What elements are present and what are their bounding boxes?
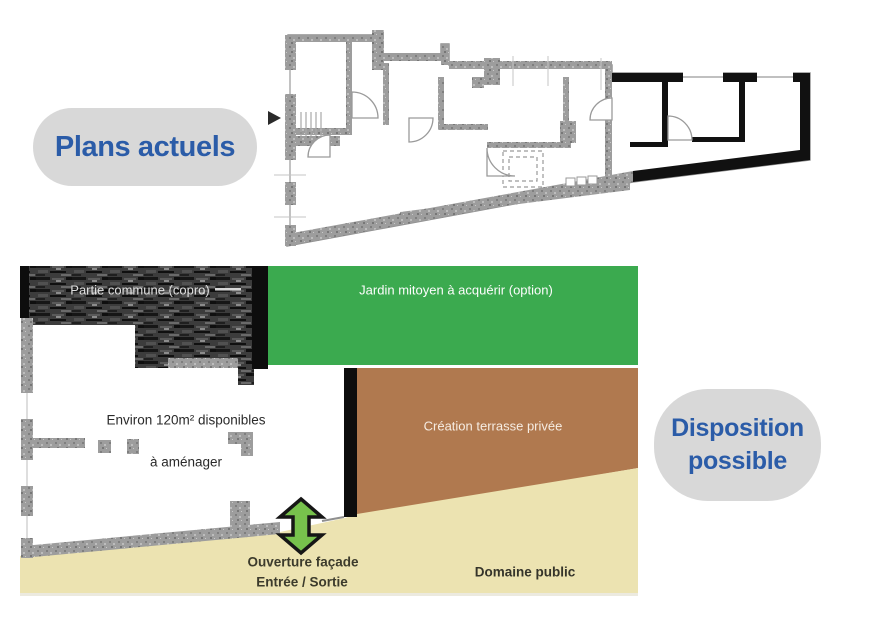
common-area-label: Partie commune (copro)	[70, 283, 209, 298]
surface-label-line1: Environ 120m² disponibles	[106, 413, 265, 428]
opening-label-line2: Entrée / Sortie	[256, 575, 348, 590]
plans-actuels-label: Plans actuels	[55, 131, 235, 164]
garden-label: Jardin mitoyen à acquérir (option)	[359, 283, 553, 298]
diagram-bottom-edge	[20, 593, 638, 596]
opening-label-line1: Ouverture façade	[247, 555, 358, 570]
slide: Plans actuels Disposition possible	[0, 0, 875, 618]
north-entrance-marker-icon	[268, 111, 281, 125]
disposition-label-line1: Disposition	[671, 412, 804, 445]
public-domain-label: Domaine public	[475, 565, 576, 580]
plan-entry-steps	[566, 176, 597, 186]
surface-label-line2: à aménager	[150, 455, 222, 470]
disposition-possible-badge: Disposition possible	[654, 389, 821, 501]
garden-region	[268, 266, 638, 365]
common-area-wall-stub	[168, 358, 238, 368]
plans-actuels-badge: Plans actuels	[33, 108, 257, 186]
current-floor-plan	[248, 24, 824, 254]
common-area-label-dash	[215, 288, 241, 291]
disposition-label-line2: possible	[688, 445, 787, 478]
terrace-label: Création terrasse privée	[424, 419, 563, 434]
